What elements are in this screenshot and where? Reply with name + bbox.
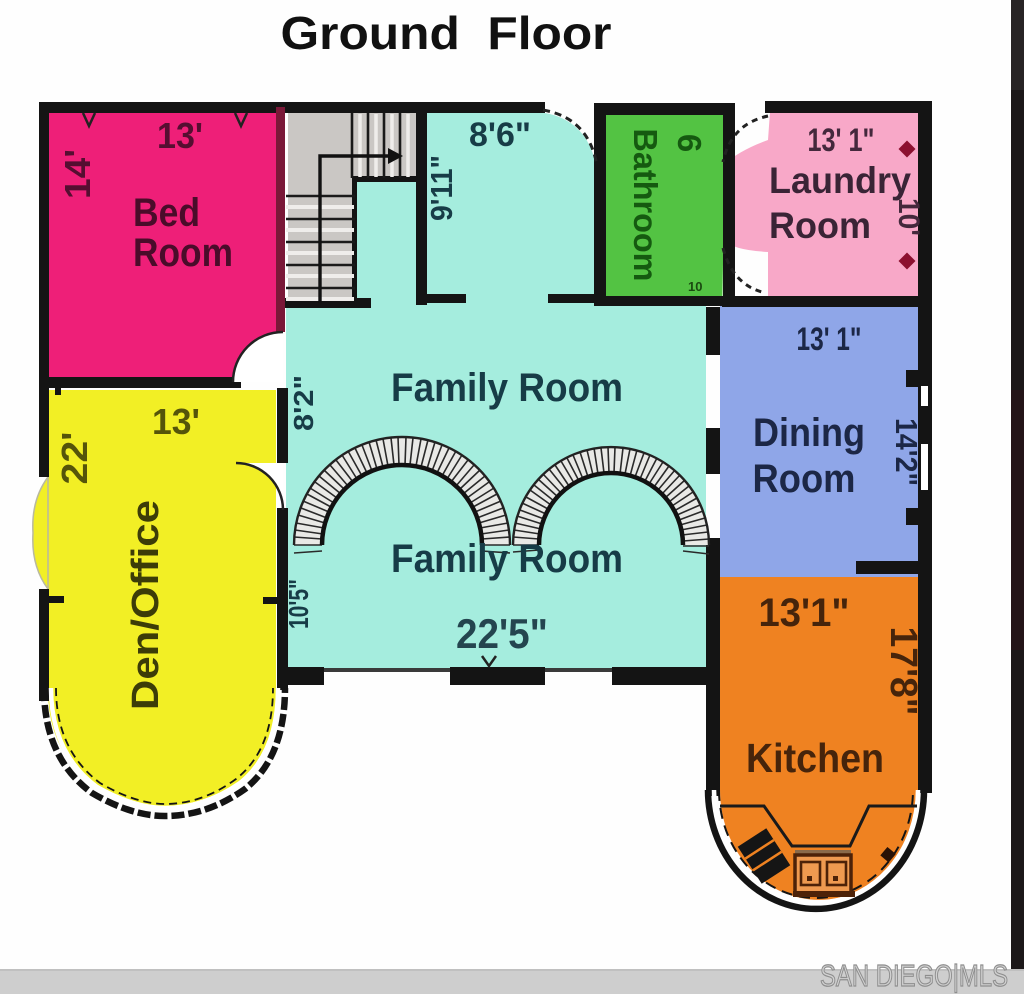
svg-text:Ground Floor: Ground Floor bbox=[281, 7, 612, 59]
svg-text:Bed: Bed bbox=[133, 191, 200, 235]
svg-text:10: 10 bbox=[688, 279, 702, 294]
svg-text:Room: Room bbox=[769, 205, 871, 246]
svg-text:SAN DIEGO|MLS: SAN DIEGO|MLS bbox=[820, 958, 1008, 993]
svg-text:14'2": 14'2" bbox=[889, 418, 924, 486]
svg-text:9'11": 9'11" bbox=[424, 155, 459, 221]
svg-text:Dining: Dining bbox=[753, 411, 865, 455]
svg-text:13': 13' bbox=[157, 115, 203, 156]
svg-text:Kitchen: Kitchen bbox=[746, 735, 884, 781]
svg-text:10'5": 10'5" bbox=[283, 579, 314, 629]
svg-text:13' 1": 13' 1" bbox=[797, 321, 862, 357]
svg-text:Family Room: Family Room bbox=[391, 366, 623, 410]
svg-text:14': 14' bbox=[57, 149, 98, 199]
svg-text:10': 10' bbox=[892, 198, 925, 236]
svg-text:6: 6 bbox=[671, 134, 708, 152]
svg-text:8'6": 8'6" bbox=[469, 116, 531, 154]
svg-text:Laundry: Laundry bbox=[769, 160, 911, 201]
svg-text:Room: Room bbox=[133, 231, 233, 275]
svg-text:17'8": 17'8" bbox=[882, 627, 924, 716]
svg-text:13': 13' bbox=[152, 401, 200, 442]
svg-text:Room: Room bbox=[753, 457, 856, 501]
svg-text:8'2": 8'2" bbox=[288, 375, 319, 431]
svg-text:Family Room: Family Room bbox=[391, 537, 623, 581]
svg-text:13' 1": 13' 1" bbox=[808, 122, 875, 158]
svg-text:22'5": 22'5" bbox=[456, 610, 548, 657]
svg-text:13'1": 13'1" bbox=[759, 591, 850, 635]
svg-text:Den/Office: Den/Office bbox=[125, 500, 167, 710]
svg-text:Bathroom: Bathroom bbox=[627, 129, 664, 282]
svg-text:22': 22' bbox=[54, 432, 95, 485]
